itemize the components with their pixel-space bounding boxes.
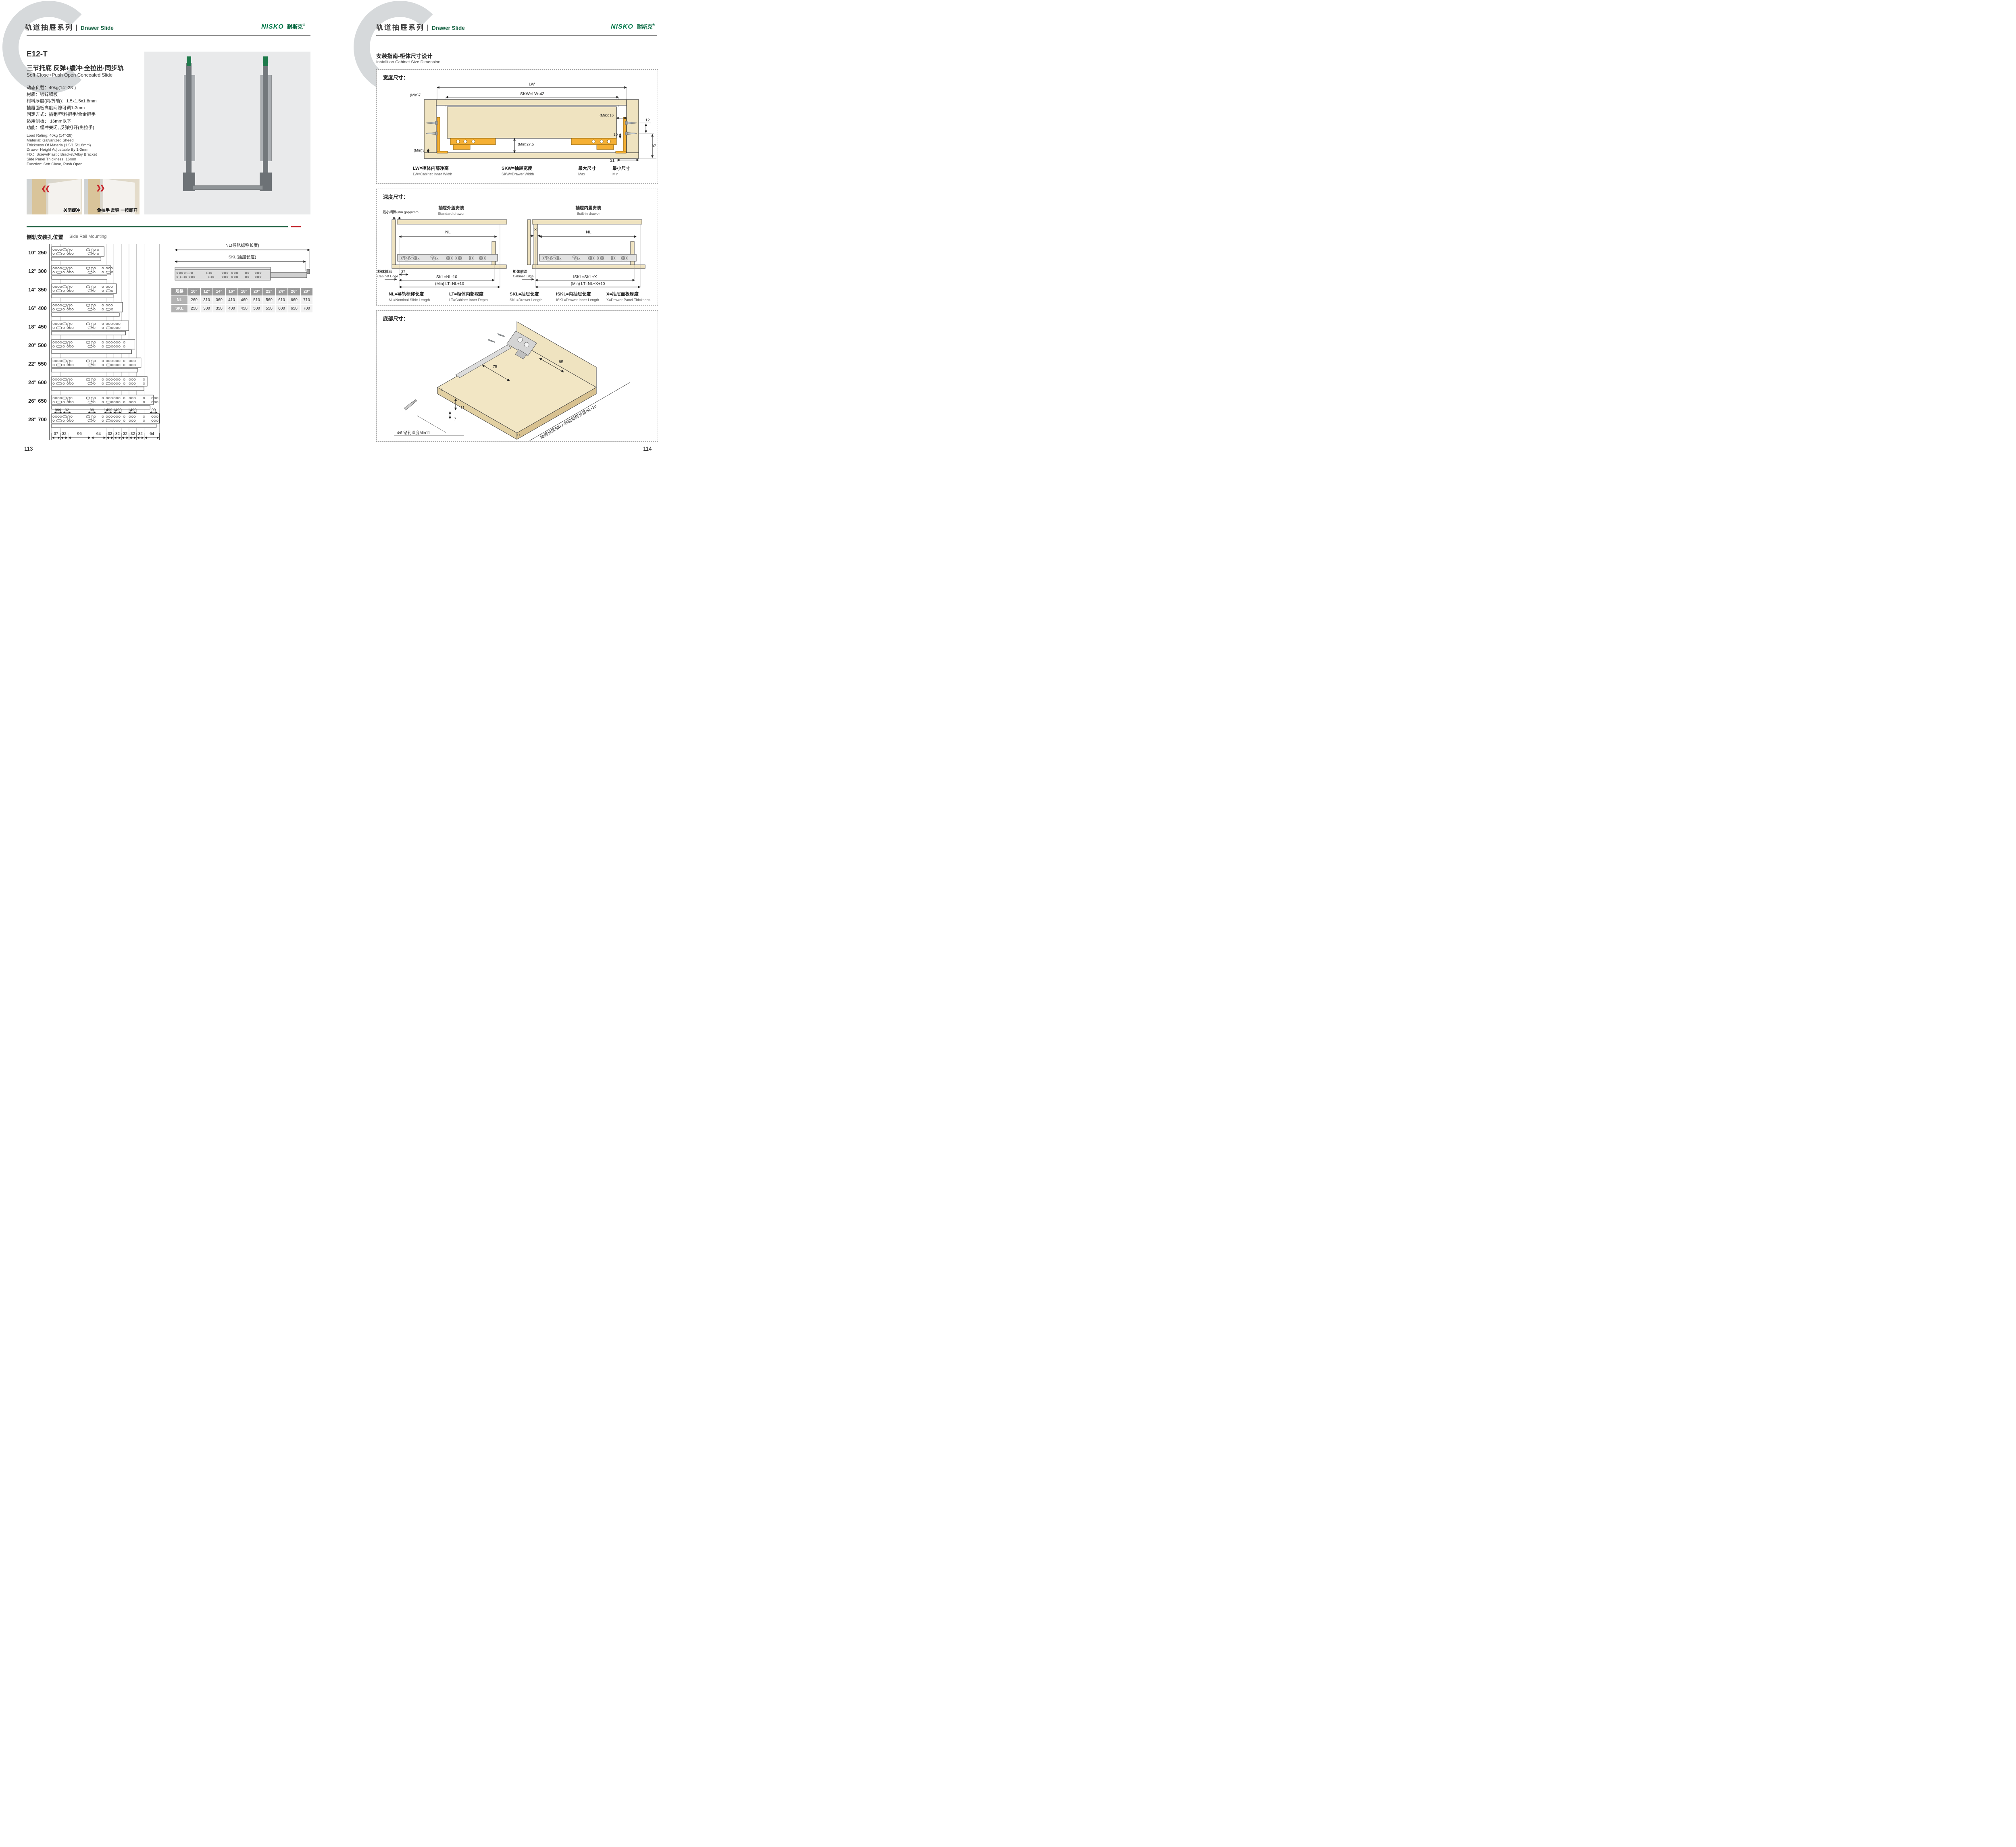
top-dim-label: 99 — [90, 408, 94, 412]
bottom-box: 底部尺寸： — [376, 310, 658, 442]
spec-header-cell: 22" — [263, 288, 275, 295]
drill-label: Φ6 钻孔深度Min11 — [397, 430, 430, 435]
spec-value-cell: 610 — [276, 296, 287, 304]
cabinet-edge-en: Cabinet Edge — [513, 274, 534, 278]
spec-line: Drawer Height Adjustable By 1-3mm — [27, 148, 97, 152]
d7-label: 7 — [454, 417, 456, 422]
push-open-arrow-icon: ❯❯ — [96, 184, 104, 192]
spec-header-cell: 26" — [288, 288, 300, 295]
hand-photo-push-open: ❯❯ 免拉手 反弹 一按即开 — [84, 179, 140, 214]
product-title-cn: 三节托底 反弹+缓冲·全拉出·同步轨 — [27, 63, 124, 72]
legend-cn: SKW=抽屉宽度 — [502, 165, 534, 171]
slide-rail-right — [263, 63, 268, 188]
bottom-dim-label: 32 — [123, 432, 128, 436]
d11-label: 11 — [460, 406, 465, 410]
min3-label: (Min)3 — [414, 148, 425, 153]
bottom-dim-label: 32 — [131, 432, 135, 436]
width-box-title: 宽度尺寸： — [383, 73, 408, 81]
spec-line: 动态负载：40kg(14"-28") — [27, 85, 97, 92]
spec-value-cell: 700 — [301, 305, 312, 312]
spec-value-cell: 510 — [251, 296, 262, 304]
logo-latin: NISKO — [611, 23, 633, 30]
bottom-dim-label: 32 — [108, 432, 112, 436]
legend-cn: 最大尺寸 — [578, 165, 596, 171]
bottom-dim-label: 32 — [62, 432, 67, 436]
photo-caption: 免拉手 反弹 一按即开 — [97, 207, 137, 213]
logo-cn: 耐斯克 — [287, 24, 303, 30]
legend-cn: SKL=抽屉长度 — [510, 291, 542, 297]
spec-value-cell: 310 — [201, 296, 212, 304]
depth-diagram: 最小间隙(Min gap)4mm 抽屉外盖安装 Standard drawer … — [377, 199, 658, 289]
section-divider-green — [27, 226, 288, 227]
x-label: X — [534, 228, 537, 232]
catalog-spread: 轨道抽屉系列Drawer Slide NISKO 耐斯克® E12-T 三节托底… — [0, 0, 676, 462]
spec-header-cell: 20" — [251, 288, 262, 295]
logo-registered-mark: ® — [652, 23, 655, 27]
rail-row: 26" 650 — [28, 395, 158, 409]
legend-en: ISKL=Drawer Inner Length — [556, 298, 599, 302]
spec-value-cell: 660 — [288, 296, 300, 304]
rail-row: 10" 250 — [28, 247, 104, 261]
builtin-drawer-en: Built-in drawer — [577, 212, 600, 216]
spec-value-cell: 710 — [301, 296, 312, 304]
section-title-en: Side Rail Mounting — [69, 234, 106, 239]
spec-header-cell: 16" — [226, 288, 237, 295]
photo-caption: 关闭缓冲 — [63, 207, 80, 213]
spec-header-cell: 规格 — [171, 288, 187, 295]
rail-row: 18" 450 — [28, 321, 129, 335]
spec-value-cell: 460 — [238, 296, 250, 304]
mounting-diagram: 10" 25012" 30014" 35016" 40018" 45020" 5… — [11, 242, 191, 443]
logo-latin: NISKO — [261, 23, 284, 30]
min275-label: (Min)27.5 — [518, 142, 534, 147]
series-title-en: Drawer Slide — [432, 25, 465, 31]
legend-item: 最小尺寸Min — [612, 165, 630, 176]
width-diagram: LW SKW=LW-42 (Min)7 — [377, 81, 658, 162]
brand-logo-right: NISKO 耐斯克® — [611, 23, 655, 31]
legend-en: SKL=Drawer Length — [510, 298, 542, 302]
page-number-right: 114 — [643, 446, 652, 452]
bottom-dim-label: 37 — [54, 432, 58, 436]
svg-text:22" 550: 22" 550 — [28, 361, 47, 367]
spec-line: FIX：Screw/Plastic Bracket/Alloy Bracket — [27, 152, 97, 157]
soft-close-arrow-icon: ❮❮ — [41, 185, 49, 193]
legend-item: LT=柜体内部深度LT=Cabinet Inner Depth — [449, 291, 488, 302]
legend-cn: X=抽屉面板厚度 — [606, 291, 650, 297]
legend-en: X=Drawer Panel Thickness — [606, 298, 650, 302]
top-dim-label: 99 — [152, 408, 156, 412]
product-title-en: Soft Close+Push Open Concealed Slide — [27, 72, 112, 78]
product-photo — [144, 52, 310, 214]
spec-line: Thickness Of Materia (1.5/1.5/1.8mm) — [27, 143, 97, 148]
spec-value-cell: 560 — [263, 296, 275, 304]
legend-cn: 最小尺寸 — [612, 165, 630, 171]
spec-line: 材质：镀锌钢板 — [27, 92, 97, 98]
legend-en: Min — [612, 172, 630, 176]
bottom-dim-label: 64 — [96, 432, 101, 436]
nl-label: NL — [445, 230, 451, 235]
nl-label: NL — [586, 230, 591, 235]
d37-label: 37 — [401, 270, 405, 274]
slide-clip-right — [263, 56, 268, 66]
rail-row: 20" 500 — [28, 339, 135, 354]
screw-icon — [488, 333, 505, 343]
slide-rail-left — [186, 63, 192, 188]
page-number-left: 113 — [24, 446, 33, 452]
spec-line: 抽屉面板高度间隙可调1-3mm — [27, 105, 97, 112]
spec-header-cell: 28" — [301, 288, 312, 295]
svg-text:10" 250: 10" 250 — [28, 250, 47, 256]
d75-label: 75 — [493, 365, 498, 369]
bottom-dim-label: 32 — [138, 432, 143, 436]
spec-line: Material: Galvanized Sheed — [27, 138, 97, 143]
skw-label: SKW=LW-42 — [520, 92, 544, 96]
lt-formula: (Min) LT=NL+10 — [435, 282, 464, 286]
cabinet-edge-en: Cabinet Edge — [377, 274, 398, 278]
lw-label: LW — [529, 82, 535, 87]
rail-row: 28" 700 — [28, 414, 159, 428]
spec-value-cell: 350 — [213, 305, 225, 312]
legend-item: LW=柜体内部净高LW=Cabinet Inner Width — [413, 165, 452, 176]
spec-value-cell: 550 — [263, 305, 275, 312]
d10-label: 10 — [613, 133, 618, 137]
legend-en: NL=Nominal Slide Length — [389, 298, 430, 302]
rail-row: 24" 600 — [28, 376, 147, 391]
spec-line: Load Rating: 40kg (14"-28) — [27, 133, 97, 138]
legend-item: NL=导轨标称长度NL=Nominal Slide Length — [389, 291, 430, 302]
rail-row: 22" 550 — [28, 358, 141, 372]
spec-line: Side Panel Thickness: 16mm — [27, 157, 97, 162]
logo-cn: 耐斯克 — [637, 24, 652, 30]
spec-value-cell: 360 — [213, 296, 225, 304]
spec-line: 适用侧板： 16mm以下 — [27, 118, 97, 125]
spec-header-cell: 14" — [213, 288, 225, 295]
dowel-pin — [404, 399, 417, 410]
legend-cn: ISKL=内抽屉长度 — [556, 291, 599, 297]
svg-text:20" 500: 20" 500 — [28, 342, 47, 348]
svg-text:16" 400: 16" 400 — [28, 305, 47, 311]
spec-line: Function: Soft Close, Push Open — [27, 162, 97, 167]
skl-dim-label: SKL(抽屉长度) — [229, 254, 256, 260]
legend-en: LT=Cabinet Inner Depth — [449, 298, 488, 302]
d12-label: 12 — [646, 118, 650, 123]
bottom-dim-label: 96 — [77, 432, 82, 436]
svg-text:12" 300: 12" 300 — [28, 268, 47, 274]
legend-item: SKL=抽屉长度SKL=Drawer Length — [510, 291, 542, 302]
legend-item: SKW=抽屉宽度SKW=Drawer Width — [502, 165, 534, 176]
c-watermark-left — [2, 1, 95, 94]
legend-item: 最大尺寸Max — [578, 165, 596, 176]
top-dim-label: 1499 — [113, 408, 121, 412]
top-dim-label: 999 — [55, 408, 61, 412]
spec-line: 固定方式：插销/塑料把手/合金把手 — [27, 111, 97, 118]
iskl-formula: ISKL=SKL+X — [573, 275, 597, 279]
spec-line: 材料厚度(内/外轨)：1.5x1.5x1.8mm — [27, 98, 97, 105]
spec-value-cell: 250 — [188, 305, 200, 312]
standard-drawer-cn: 抽屉外盖安装 — [439, 205, 464, 210]
header-right: 轨道抽屉系列Drawer Slide — [376, 22, 465, 32]
legend-item: X=抽屉面板厚度X=Drawer Panel Thickness — [606, 291, 650, 302]
section-title-cn: 侧轨安装孔位置 — [27, 233, 63, 241]
hand-photo-soft-close: ❮❮ 关闭缓冲 — [27, 179, 82, 214]
header-rule-left — [27, 35, 310, 36]
svg-text:14" 350: 14" 350 — [28, 287, 47, 293]
min7-label: (Min)7 — [410, 93, 421, 98]
spec-header-cell: 10" — [188, 288, 200, 295]
width-box: 宽度尺寸： LW SKW=LW-42 (Min)7 — [376, 69, 658, 184]
top-dim-label: 32 — [65, 408, 69, 412]
spec-value-cell: 600 — [276, 305, 287, 312]
bottom-diagram: 75 85 11 7 Φ6 钻孔深度Min11 抽屉长度SKL=导轨标称长度NL… — [377, 320, 658, 441]
d21-label: 21 — [610, 158, 614, 162]
sync-bar — [193, 185, 263, 190]
spec-value-cell: 260 — [188, 296, 200, 304]
slide-clip-left — [187, 56, 191, 66]
svg-text:28" 700: 28" 700 — [28, 416, 47, 422]
legend-en: Max — [578, 172, 596, 176]
skl-formula: SKL=NL-10 — [436, 275, 457, 279]
nl-skl-diagram: NL(导轨标称长度) SKL(抽屉长度) — [173, 242, 312, 284]
section-divider-red — [291, 226, 301, 227]
spec-value-cell: 410 — [226, 296, 237, 304]
top-dim-label: 1499 — [104, 408, 112, 412]
rail-hook — [307, 269, 310, 274]
standard-drawer-en: Standard drawer — [438, 212, 465, 216]
nl-dim-label: NL(导轨标称长度) — [225, 243, 259, 248]
series-title-cn: 轨道抽屉系列 — [25, 24, 73, 31]
spec-value-cell: 450 — [238, 305, 250, 312]
legend-item: ISKL=内抽屉长度ISKL=Drawer Inner Length — [556, 291, 599, 302]
specs-en-list: Load Rating: 40kg (14"-28)Material: Galv… — [27, 133, 97, 167]
spec-header-cell: 18" — [238, 288, 250, 295]
max16-label: (Max)16 — [600, 113, 614, 118]
specs-cn-list: 动态负载：40kg(14"-28")材质：镀锌钢板材料厚度(内/外轨)：1.5x… — [27, 85, 97, 131]
bottom-dim-label: 64 — [150, 432, 154, 436]
series-title-cn: 轨道抽屉系列 — [376, 24, 425, 31]
min-gap-label: 最小间隙(Min gap)4mm — [383, 210, 419, 214]
spec-row-label: SKL — [171, 305, 187, 312]
d85-label: 85 — [559, 360, 564, 364]
cabinet-edge-cn: 柜体前沿 — [512, 269, 527, 274]
spec-value-cell: 500 — [251, 305, 262, 312]
depth-box: 深度尺寸： 最小间隙(Min gap)4mm 抽屉外盖安装 Standard d… — [376, 189, 658, 306]
spec-line: 功能：缓冲关闭, 反弹打开(免拉手) — [27, 125, 97, 131]
spec-value-cell: 300 — [201, 305, 212, 312]
header-divider-bar — [427, 25, 428, 31]
svg-text:26" 650: 26" 650 — [28, 398, 47, 404]
spec-value-cell: 400 — [226, 305, 237, 312]
model-heading: E12-T — [27, 50, 48, 59]
brand-logo-left: NISKO 耐斯克® — [261, 23, 305, 31]
series-title-en: Drawer Slide — [81, 25, 114, 31]
logo-registered-mark: ® — [303, 23, 305, 27]
rail-row: 14" 350 — [28, 284, 117, 298]
svg-text:18" 450: 18" 450 — [28, 324, 47, 330]
cabinet-edge-cn: 柜体前沿 — [377, 269, 392, 274]
spec-table: 规格10"12"14"16"18"20"22"24"26"28"NL260310… — [171, 288, 312, 312]
spec-row-label: NL — [171, 296, 187, 304]
legend-cn: LW=柜体内部净高 — [413, 165, 452, 171]
rail-row: 12" 300 — [28, 265, 113, 279]
top-dim-label: 1499 — [128, 408, 136, 412]
legend-cn: NL=导轨标称长度 — [389, 291, 430, 297]
guide-title-en: Installtion Cabinet Size Dimension — [376, 60, 440, 64]
guide-title-cn: 安装指南-柜体尺寸设计 — [376, 52, 433, 60]
lt-formula: (Min) LT=NL+X+10 — [571, 282, 605, 286]
rail-row: 16" 400 — [28, 302, 123, 316]
bottom-dim-label: 32 — [115, 432, 120, 436]
builtin-drawer-cn: 抽屉内置安装 — [576, 205, 601, 210]
legend-en: LW=Cabinet Inner Width — [413, 172, 452, 176]
spec-header-cell: 24" — [276, 288, 287, 295]
header-divider-bar — [76, 25, 77, 31]
legend-en: SKW=Drawer Width — [502, 172, 534, 176]
legend-cn: LT=柜体内部深度 — [449, 291, 488, 297]
header-left: 轨道抽屉系列Drawer Slide — [25, 22, 114, 32]
spec-value-cell: 650 — [288, 305, 300, 312]
header-rule-right — [376, 35, 657, 36]
svg-text:24" 600: 24" 600 — [28, 379, 47, 385]
spec-header-cell: 12" — [201, 288, 212, 295]
